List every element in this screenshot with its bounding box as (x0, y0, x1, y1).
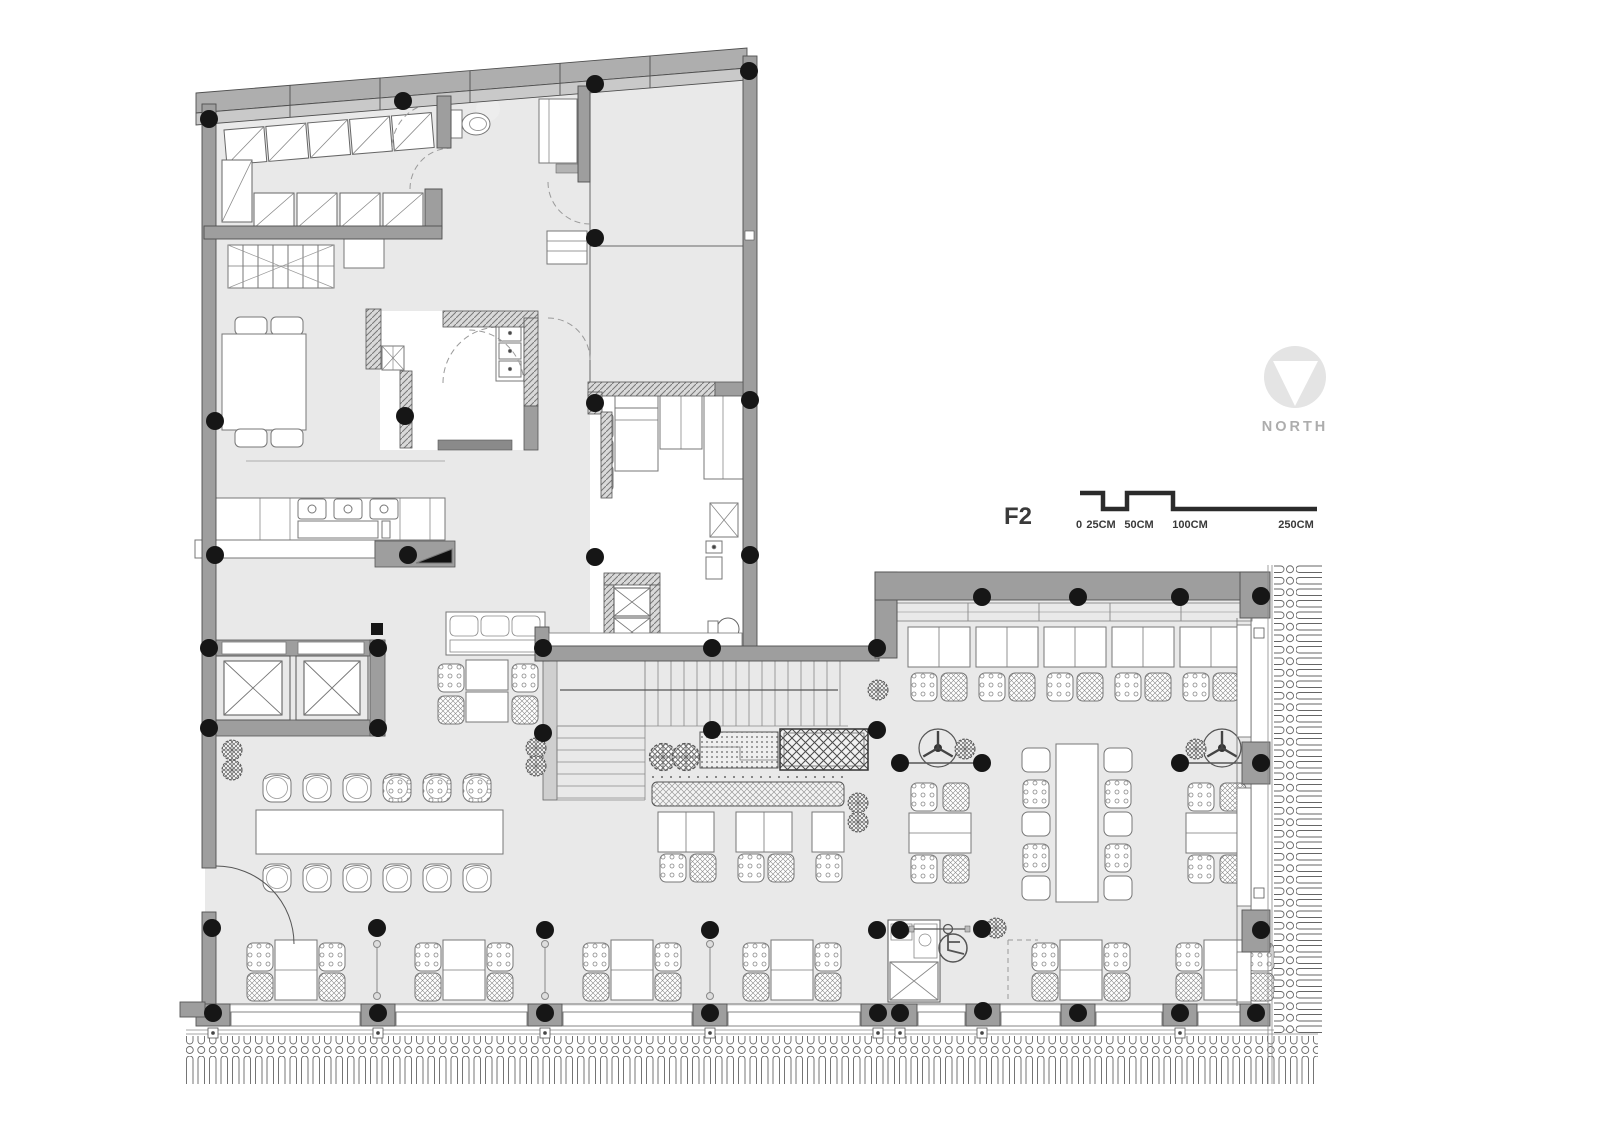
table-group (743, 940, 841, 1001)
scale-tick-250: 250CM (1278, 519, 1313, 531)
bench-tables (658, 812, 844, 882)
prep-table (228, 245, 334, 288)
north-indicator: NORTH (1262, 346, 1329, 435)
table-group (1032, 940, 1130, 1001)
floor-plan-page: NORTH F2 0 25CM 50CM 100CM 250CM (0, 0, 1600, 1129)
scale-tick-25: 25CM (1086, 519, 1115, 531)
scale-tick-100: 100CM (1172, 519, 1207, 531)
scale-tick-50: 50CM (1124, 519, 1153, 531)
staff-table (222, 317, 306, 447)
window-wall-right (1237, 618, 1270, 1006)
communal-table (1022, 744, 1132, 902)
floor-label: F2 (1004, 503, 1032, 530)
table-group (247, 940, 345, 1001)
coffee-machine-icon (298, 499, 398, 519)
floor-plan-drawing: NORTH F2 0 25CM 50CM 100CM 250CM (0, 0, 1600, 1129)
table-group (583, 940, 681, 1001)
north-label: NORTH (1262, 419, 1329, 435)
bar-counter (700, 729, 868, 770)
balustrade-bottom (186, 1028, 1318, 1084)
scale-tick-0: 0 (1076, 519, 1082, 531)
scale-bar-line (1080, 493, 1317, 509)
booth-seating (438, 612, 545, 724)
scale-bar: F2 0 25CM 50CM 100CM 250CM (1004, 493, 1317, 531)
table-group (415, 940, 513, 1001)
